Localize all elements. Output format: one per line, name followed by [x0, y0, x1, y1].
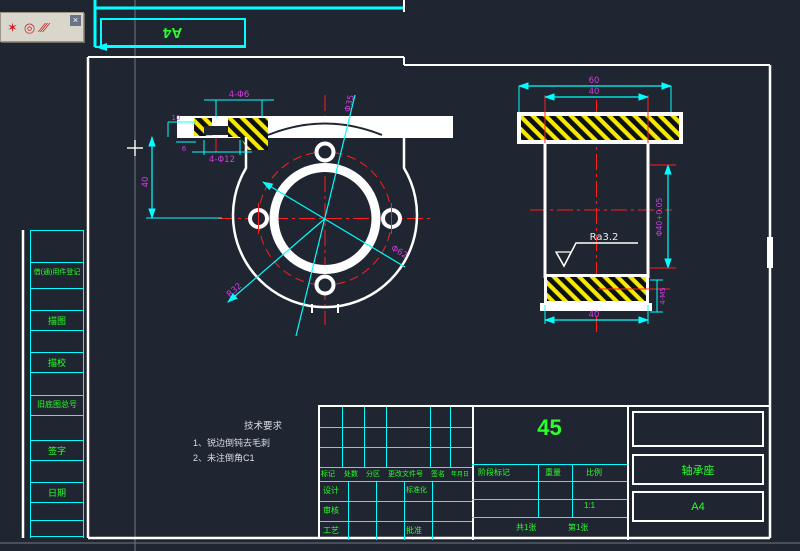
tech-req-title: 技术要求: [193, 419, 333, 436]
dim-counterbore: 4-Φ12: [209, 155, 235, 165]
dim-bore: Φ35: [343, 94, 357, 113]
dim-inner-width: 40: [589, 87, 600, 97]
rev-col-docno: 更改文件号: [388, 469, 423, 479]
front-view: 4-Φ6 4-Φ12 10 6 40 Φ35 Φ62 R32: [141, 90, 452, 336]
donut-tool-icon[interactable]: ◎: [24, 21, 35, 34]
material-value: 45: [472, 415, 627, 441]
spray-tool-icon[interactable]: ✶: [7, 21, 18, 34]
strip-row-label: 描图: [31, 314, 83, 327]
strip-row-label: 描校: [31, 356, 83, 369]
rev-col-sign: 签名: [431, 469, 445, 479]
rev-col-zone: 分区: [366, 469, 380, 479]
tech-req-item: 2、未注倒角C1: [193, 451, 333, 467]
part-name: 轴承座: [682, 462, 715, 478]
sheet-total: 共1张: [516, 522, 536, 533]
left-accessory-strip: 借(通)用件登记 描图 描校 旧底图总号 签字 日期: [30, 230, 84, 538]
dim-bore-tolerance: Φ40+0.05: [655, 198, 664, 237]
title-block: 标记 处数 分区 更改文件号 签名 年月日 设计 审核 工艺 标准化 批准 45…: [318, 405, 770, 538]
dim-radius: R32: [225, 281, 244, 300]
role-process: 工艺: [323, 525, 339, 536]
sheet-size: A4: [691, 501, 704, 513]
scale-label: 比例: [586, 467, 602, 478]
strip-row-label: 旧底图总号: [31, 399, 83, 410]
dim-bottom-width: 40: [589, 310, 600, 320]
rev-col-mark: 标记: [321, 469, 335, 479]
strip-row-label: 日期: [31, 486, 83, 499]
role-standard: 标准化: [406, 485, 427, 495]
dim-outer-width: 60: [589, 76, 600, 86]
paper-size-label: A4: [163, 24, 182, 41]
strip-row-label: 签字: [31, 444, 83, 457]
floating-toolbar[interactable]: ✶ ◎ ∕∕∕ ×: [0, 12, 84, 42]
strip-row-label: 借(通)用件登记: [31, 267, 83, 277]
dim-height: 40: [141, 177, 151, 188]
weight-label: 重量: [545, 467, 561, 478]
dim-top-holes: 4-Φ6: [229, 90, 250, 100]
dim-tapped-holes: 4-M5: [659, 287, 667, 304]
dim-plate-thickness: 10: [172, 114, 181, 122]
tech-req-item: 1、锐边倒钝去毛刺: [193, 436, 333, 452]
role-check: 审核: [323, 505, 339, 516]
drawing-number-box: [632, 411, 764, 447]
cad-canvas[interactable]: 4-Φ6 4-Φ12 10 6 40 Φ35 Φ62 R32: [0, 0, 800, 551]
sheet-number: 第1张: [568, 522, 588, 533]
counterbore-slot: [204, 126, 228, 135]
surface-finish-value: Ra3.2: [590, 232, 619, 243]
hatch-tool-icon[interactable]: ∕∕∕: [41, 21, 48, 34]
plate-hatch-right: [228, 118, 268, 137]
stage-label: 阶段标记: [478, 467, 510, 478]
section-view: Ra3.2 60 40 Φ40+0.05 4-M5 40: [518, 76, 682, 332]
toolbar-close-button[interactable]: ×: [70, 15, 81, 26]
title-block-divider: [627, 407, 629, 540]
paper-size-callout: A4: [100, 18, 246, 47]
rev-col-count: 处数: [344, 469, 358, 479]
centering-mark: [767, 237, 773, 268]
scale-value: 1:1: [584, 501, 595, 510]
role-design: 设计: [323, 485, 339, 496]
dim-step: 6: [182, 145, 187, 153]
role-approve: 批准: [406, 525, 422, 536]
rev-col-date: 年月日: [451, 469, 469, 478]
technical-requirements: 技术要求 1、锐边倒钝去毛刺 2、未注倒角C1: [193, 419, 333, 467]
